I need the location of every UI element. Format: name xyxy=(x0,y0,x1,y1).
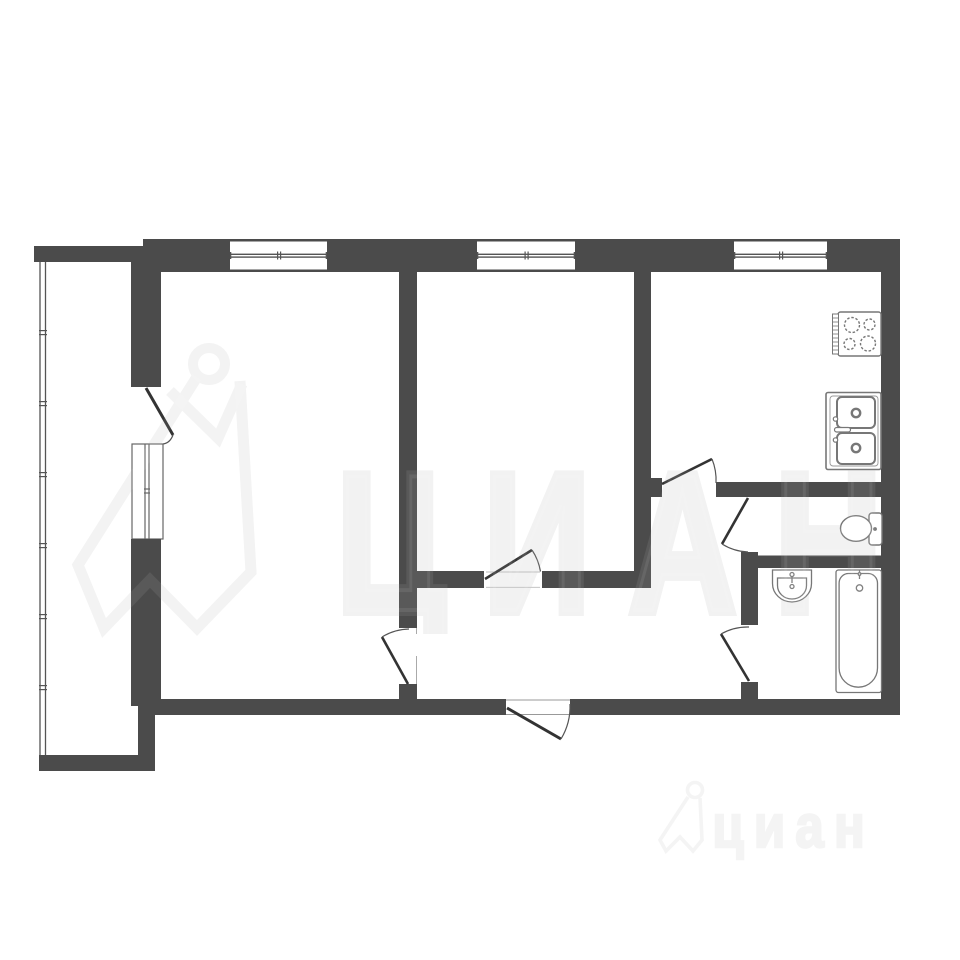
svg-text:циан: циан xyxy=(712,793,875,860)
svg-text:ЦИАН: ЦИАН xyxy=(336,432,920,655)
